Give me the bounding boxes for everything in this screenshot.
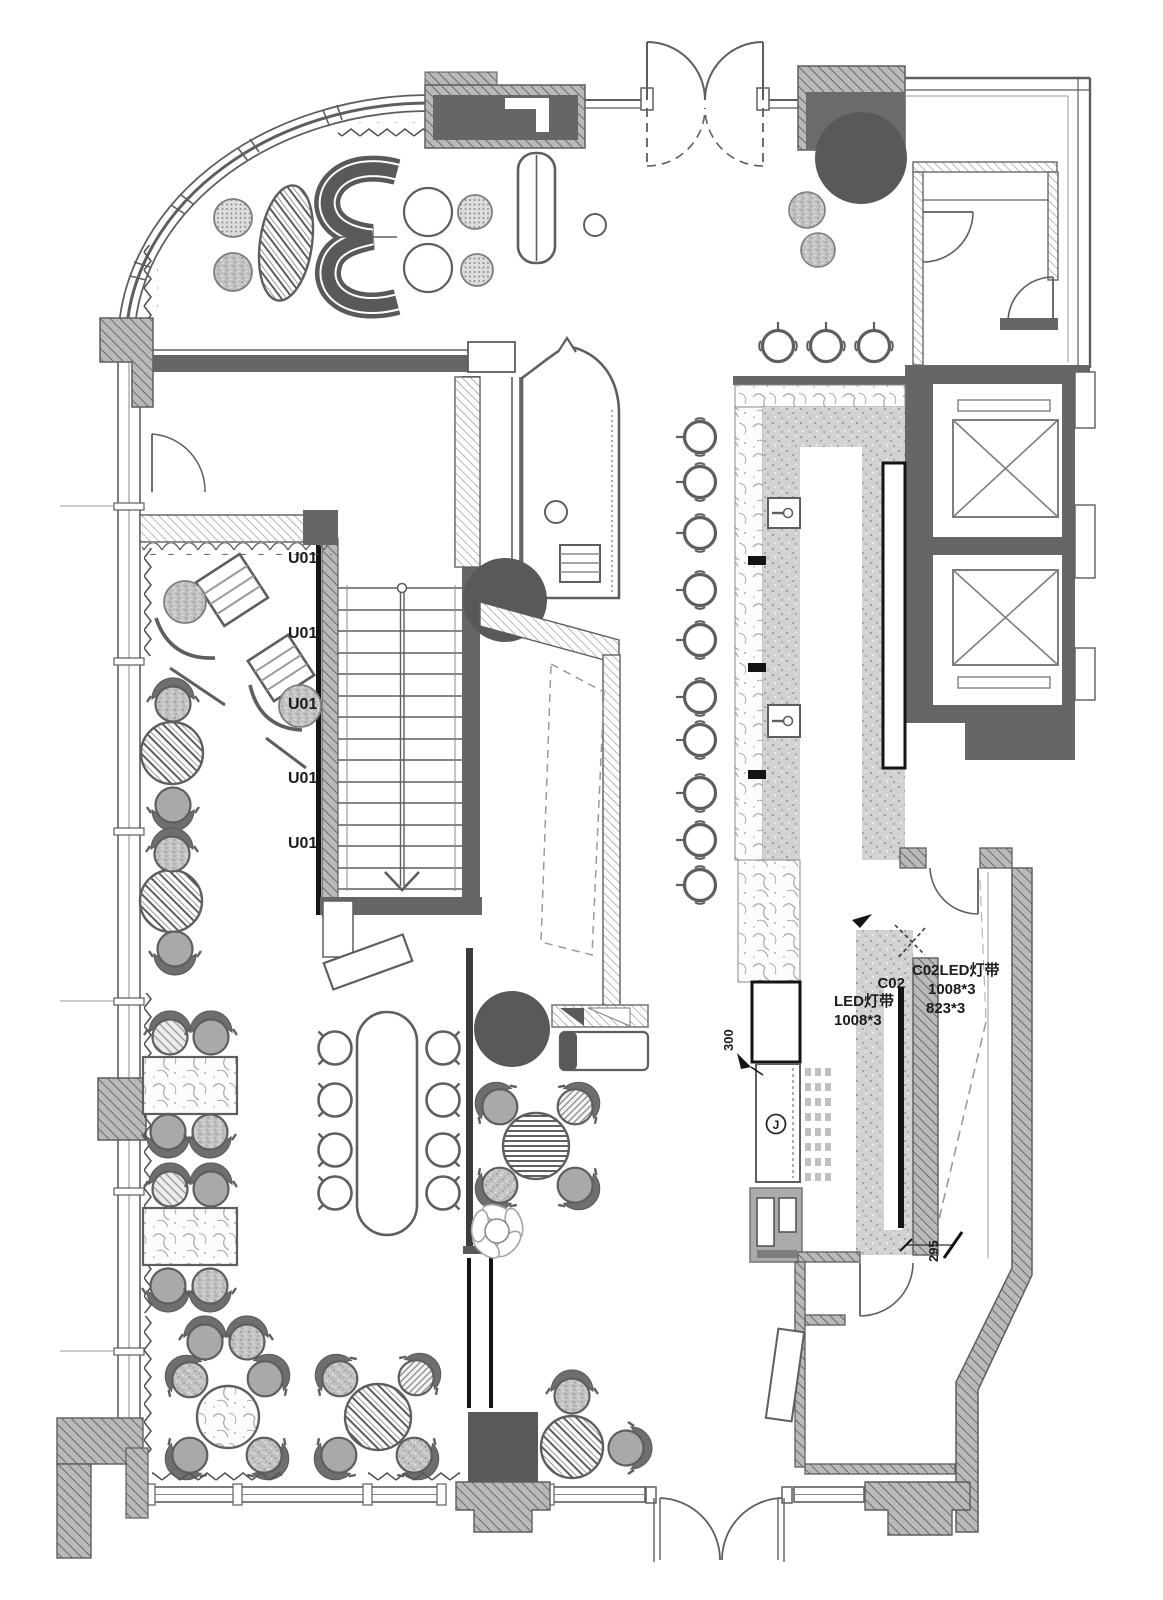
round-table (140, 870, 202, 932)
unit-label-u01: U01 (288, 770, 317, 787)
stair-down-arrow (385, 872, 419, 890)
unit-label-u01: U01 (288, 625, 317, 642)
window-mullion (114, 1348, 144, 1355)
led-right-name: C02LED灯带 (912, 962, 1000, 979)
bar-stool[interactable] (807, 322, 845, 362)
mid-left-lounge (140, 548, 321, 975)
curtain-zigzag (368, 1472, 460, 1485)
oval-table (252, 182, 320, 304)
rect-table (143, 1208, 237, 1265)
bar-stool[interactable] (676, 571, 716, 609)
column (468, 1412, 538, 1482)
station-shelf (560, 545, 600, 582)
round-table (503, 1113, 569, 1179)
bar-front (735, 407, 763, 860)
door-swing-arc (660, 1498, 720, 1560)
chair[interactable] (146, 828, 198, 872)
door-swing-arc (152, 434, 205, 492)
round-table (541, 1416, 603, 1478)
corner-pier (126, 1448, 148, 1518)
unit-label-u01: U01 (288, 550, 317, 567)
unit-label-u01: U01 (288, 835, 317, 852)
under-counter-unit (752, 982, 800, 1062)
bar-stool[interactable] (676, 678, 716, 716)
chair[interactable] (427, 1032, 460, 1065)
window-mullion (114, 658, 144, 665)
chair[interactable] (546, 1370, 598, 1414)
dim-text-295: 295 (926, 1240, 941, 1262)
lounge-chair[interactable] (214, 199, 252, 237)
stair-landing-slot (323, 901, 353, 957)
counter-notch (536, 98, 549, 132)
floor-plan-canvas: J (0, 0, 1163, 1600)
curved-bench (156, 618, 215, 658)
round-table (197, 1386, 259, 1448)
pier-base (865, 1482, 970, 1535)
elevator-block (905, 368, 1095, 760)
door-swing-arc (722, 1498, 782, 1560)
upper-lounge-furniture (214, 153, 606, 306)
led-left-size: 1008*3 (834, 1012, 882, 1029)
coffee-machine (750, 1188, 802, 1262)
led-strip (898, 988, 904, 1228)
bar-south-counter (738, 860, 800, 982)
chair[interactable] (185, 1163, 237, 1207)
chair[interactable] (147, 678, 199, 722)
column-box (468, 342, 515, 372)
door-swing-arc-dashed (647, 108, 705, 166)
bar-stool[interactable] (676, 621, 716, 659)
lounge-pouf[interactable] (164, 581, 206, 623)
mid-lounge-north-wall (140, 434, 338, 555)
curtain-zigzag (142, 245, 158, 319)
chair[interactable] (427, 1177, 460, 1210)
led-left-name: LED灯带 (834, 993, 894, 1010)
chair[interactable] (319, 1177, 352, 1210)
station-stool[interactable] (545, 501, 567, 523)
door-swing-arc (930, 868, 978, 914)
chair[interactable] (427, 1084, 460, 1117)
unit-labels: U01 U01 U01 U01 U01 (288, 550, 317, 852)
bar-stool[interactable] (676, 418, 716, 456)
bench-line (266, 738, 306, 768)
bar-sink (768, 498, 800, 528)
bottom-double-door[interactable] (646, 1487, 792, 1562)
wall-pier (98, 1078, 146, 1140)
window-mullion (114, 503, 144, 510)
round-column (474, 991, 550, 1067)
led-right-size2: 823*3 (926, 1000, 965, 1017)
curtain-zigzag (152, 1472, 282, 1485)
lounge-chair[interactable] (461, 254, 493, 286)
bottom-wall (57, 1412, 970, 1558)
restroom-block (905, 78, 1090, 379)
bar-stool[interactable] (676, 866, 716, 904)
kitchen-area (798, 848, 1032, 1532)
lounge-chair[interactable] (458, 195, 492, 229)
chair[interactable] (185, 1011, 237, 1055)
open-door-leaf[interactable] (489, 1258, 493, 1408)
rect-table (143, 1057, 237, 1114)
window-mullion (114, 1188, 144, 1195)
elevator-door-slot[interactable] (958, 677, 1050, 688)
pier-base (456, 1482, 550, 1532)
led-right-size1: 1008*3 (928, 981, 976, 998)
door-swing-arc-dashed (705, 108, 763, 166)
communal-oval-table (357, 1012, 417, 1235)
door-swing-arc (860, 1263, 913, 1316)
lounge-pouf (801, 233, 835, 267)
equipment-tag-label: J (773, 1118, 780, 1132)
chair[interactable] (427, 1134, 460, 1167)
round-table (141, 722, 203, 784)
stool[interactable] (584, 214, 606, 236)
bar-stool[interactable] (855, 322, 893, 362)
door-swing-arc (705, 42, 763, 100)
floor-plan-drawing: J (0, 0, 1163, 1600)
chair[interactable] (319, 1084, 352, 1117)
bar-sink (768, 705, 800, 737)
tall-table (518, 153, 555, 263)
chair[interactable] (319, 1134, 352, 1167)
bar-walkway (800, 447, 862, 860)
bar-stool[interactable] (676, 821, 716, 859)
chair[interactable] (147, 788, 199, 832)
dim-text-300: 300 (721, 1029, 736, 1051)
door-swing-arc (923, 212, 973, 262)
mid-service-counter (552, 1005, 648, 1070)
door-swing-arc (647, 42, 705, 100)
led-left-code: C02 (877, 975, 905, 992)
lounge-pouf (789, 192, 825, 228)
door-swing-arc (1008, 277, 1053, 322)
round-table (404, 244, 452, 292)
left-window-wall (60, 352, 146, 1454)
round-column (815, 112, 907, 204)
chair[interactable] (319, 1032, 352, 1065)
curtain-zigzag (144, 548, 157, 656)
window-mullion (114, 998, 144, 1005)
round-table (404, 188, 452, 236)
elevator-car-1 (953, 420, 1058, 517)
top-wall-and-service-block (425, 72, 800, 148)
upper-lounge-south-wall (153, 342, 515, 372)
curtain-zigzag (144, 1316, 157, 1456)
entrance-double-door[interactable] (641, 42, 769, 166)
tilted-table (196, 554, 268, 626)
open-door-leaf[interactable] (467, 1258, 471, 1408)
window-mullion (114, 828, 144, 835)
curtain-zigzag (338, 122, 428, 137)
back-bar-equipment (883, 463, 905, 768)
unit-label-u01: U01 (288, 696, 317, 713)
elevator-car-2 (953, 570, 1058, 665)
elevator-door-slot[interactable] (958, 400, 1050, 411)
bottom-dining (153, 1316, 652, 1492)
chair[interactable] (609, 1422, 653, 1474)
bar-stool[interactable] (676, 721, 716, 759)
curvy-sofa (327, 169, 397, 306)
bar-stool[interactable] (759, 322, 797, 362)
round-table (345, 1384, 411, 1450)
equipment-cabinet-j: J (756, 1064, 800, 1182)
lounge-chair[interactable] (214, 253, 252, 291)
chair[interactable] (149, 932, 201, 976)
bar-stool[interactable] (676, 463, 716, 501)
communal-table-group (319, 934, 460, 1235)
bar-stool[interactable] (676, 514, 716, 552)
entry-column-block (789, 66, 907, 267)
hidden-edge-dashed (541, 664, 604, 955)
bar-stool[interactable] (676, 774, 716, 812)
corner-pier (57, 1464, 91, 1558)
